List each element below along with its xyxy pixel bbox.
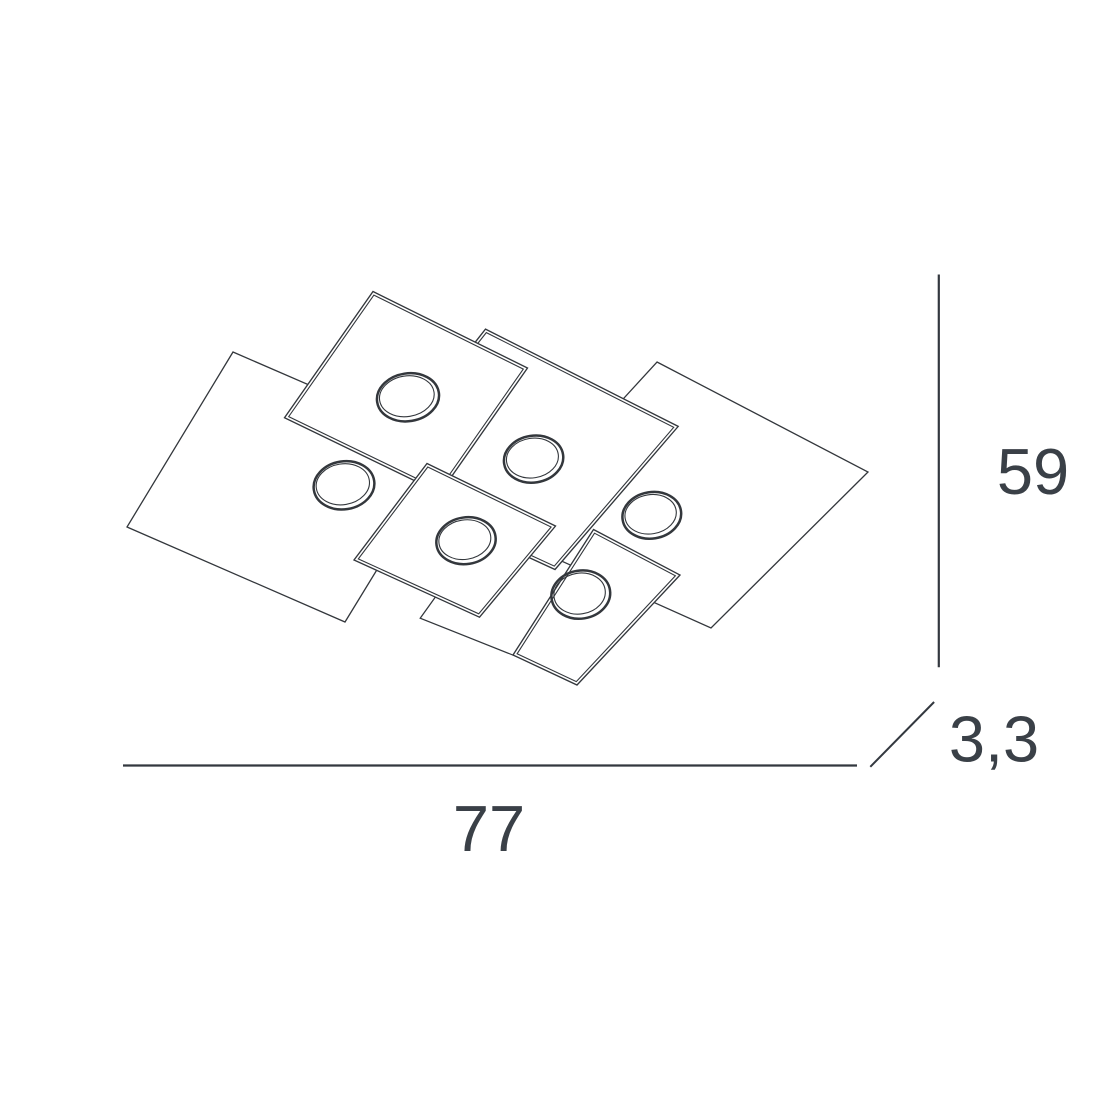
svg-text:77: 77	[453, 792, 525, 865]
svg-text:3,3: 3,3	[949, 703, 1039, 776]
svg-text:59: 59	[997, 435, 1069, 508]
